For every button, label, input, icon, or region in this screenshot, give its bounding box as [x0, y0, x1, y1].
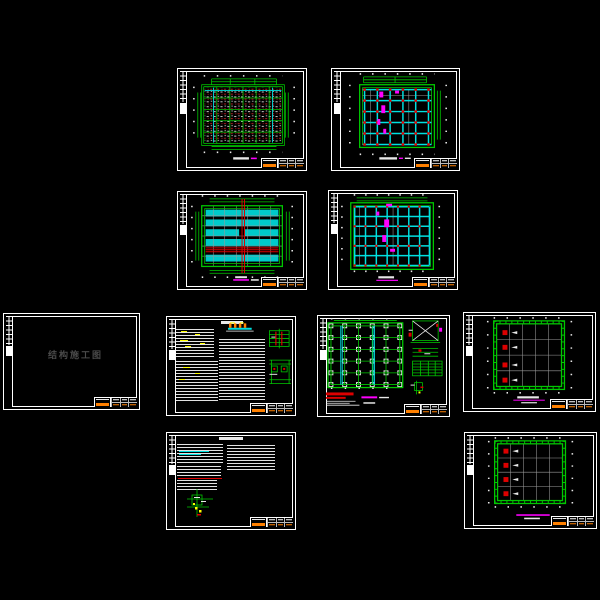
- title-block: [550, 399, 593, 409]
- title-block: [414, 158, 457, 168]
- detail-figure-column: [411, 381, 424, 395]
- sheet-ring-beam-plan-2: [464, 432, 597, 529]
- sheet-ring-beam-plan-1: [463, 312, 596, 412]
- legend-and-titles: [326, 392, 389, 405]
- title-block: [551, 516, 594, 526]
- drawing-title-underline: [376, 280, 398, 281]
- title-block: [250, 403, 293, 413]
- drawing-foundation-plan: [326, 318, 447, 414]
- sheet-slab-plan-2: [328, 190, 458, 290]
- sheet-foundation-plan: [317, 315, 450, 417]
- drawing-title-underline: [516, 514, 549, 516]
- magenta-annotations: [376, 204, 395, 252]
- detail-figure-right-2: [269, 360, 291, 384]
- cyan-beam-grid: [355, 207, 430, 266]
- notes-detail-figures: [167, 317, 295, 415]
- cyan-highlight-line: [179, 451, 209, 453]
- notes-text-block-2: [177, 466, 221, 476]
- cyan-beam-grid: [363, 90, 432, 145]
- drawing-title-text: [233, 157, 249, 159]
- drawing-title-text: [517, 396, 539, 398]
- leader-arrows: [511, 331, 517, 381]
- column-marks: [363, 90, 431, 145]
- top-edge-beams: [364, 77, 427, 83]
- notes-detail-figure: [185, 489, 215, 519]
- column-red-squares: [502, 330, 507, 382]
- cad-overview-canvas: 结构施工图: [0, 0, 600, 600]
- detail-figure-section: [413, 348, 439, 356]
- title-block: [250, 517, 293, 527]
- sheet-general-notes-1: [166, 316, 296, 416]
- notes-text-block-4: [227, 445, 275, 471]
- top-edge-beams: [212, 79, 277, 85]
- title-block: [412, 277, 455, 287]
- drawing-title-text: [379, 157, 397, 159]
- title-block: [404, 404, 447, 414]
- title-block: [94, 397, 137, 407]
- cover-title-text: 结构施工图: [48, 348, 103, 361]
- sheet-beam-reinforcement-plan-2: [331, 68, 460, 171]
- drawing-beam-plan-cyan: [340, 71, 457, 168]
- title-block: [261, 158, 304, 168]
- drawing-beam-plan-dense: [186, 71, 304, 168]
- detail-figure-roof: [409, 321, 442, 343]
- cyan-highlight-line: [179, 454, 201, 456]
- drawing-slab-plan-2: [337, 193, 455, 287]
- drawing-scale-text: [251, 158, 257, 160]
- drawing-title-underline: [233, 279, 249, 281]
- notes-title-text: [219, 437, 243, 440]
- red-underline: [178, 478, 222, 479]
- detail-figure-right-1: [269, 329, 289, 349]
- sheet-cover: 结构施工图: [3, 313, 140, 410]
- drawing-title-text: [524, 518, 540, 520]
- drawing-title-text: [235, 276, 247, 278]
- sheet-beam-reinforcement-plan-1: [177, 68, 307, 171]
- drawing-title-text: [378, 276, 394, 278]
- cyan-strips: [341, 326, 375, 385]
- drawing-ring-beam-plan-2: [473, 435, 594, 526]
- drawing-title-underline: [513, 400, 544, 401]
- drawing-slab-plan-1: [186, 194, 304, 287]
- frame-inner-border: [12, 316, 137, 407]
- drawing-ring-beam-plan-1: [472, 315, 593, 409]
- title-block: [261, 277, 304, 287]
- foundation-grid: [331, 326, 400, 385]
- foundation-pads: [328, 326, 402, 385]
- sheet-general-notes-2: [166, 432, 296, 530]
- sheet-slab-plan-1: [177, 191, 307, 290]
- detail-table: [413, 361, 443, 376]
